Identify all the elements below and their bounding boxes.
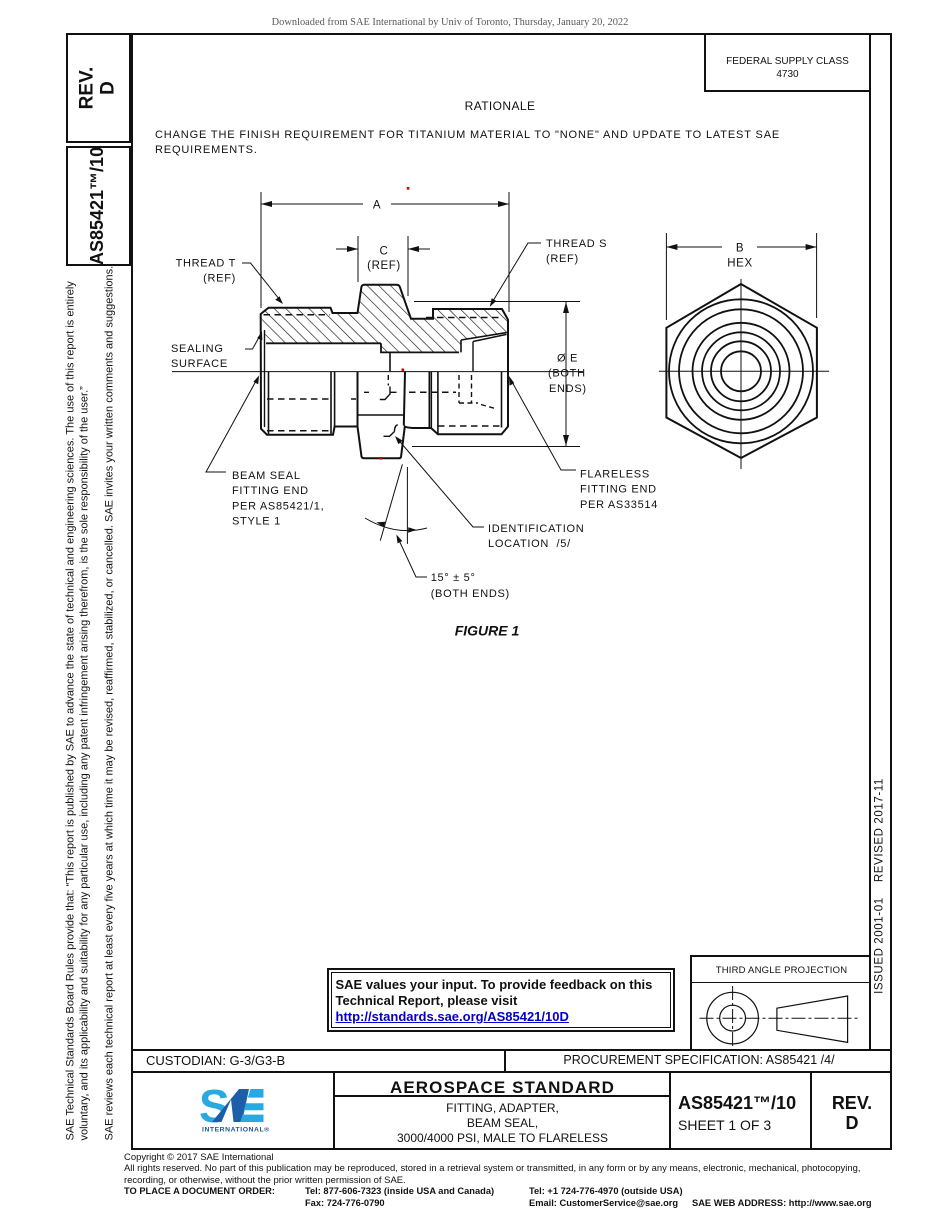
svg-text:HEX: HEX [727,258,752,270]
svg-text:INTERNATIONAL®: INTERNATIONAL® [202,1126,270,1134]
svg-text:FLARELESS: FLARELESS [580,469,650,481]
svg-text:(REF): (REF) [203,272,236,284]
svg-text:B: B [736,243,744,255]
svg-text:STYLE 1: STYLE 1 [232,516,281,528]
svg-text:Ø E: Ø E [557,353,578,365]
svg-text:FITTING END: FITTING END [580,484,657,496]
svg-text:PER AS33514: PER AS33514 [580,499,658,511]
svg-text:FIGURE 1: FIGURE 1 [455,623,520,639]
svg-text:THREAD T: THREAD T [176,258,236,270]
svg-text:(REF): (REF) [367,260,401,272]
svg-text:FITTING END: FITTING END [232,485,309,497]
svg-text:IDENTIFICATION: IDENTIFICATION [488,523,584,535]
svg-text:A: A [373,200,381,212]
svg-text:ENDS): ENDS) [549,383,587,395]
svg-text:15° ± 5°: 15° ± 5° [431,572,476,584]
svg-text:THREAD S: THREAD S [546,238,607,250]
svg-text:(REF): (REF) [546,253,579,265]
svg-text:SEALING: SEALING [171,343,224,355]
svg-text:SURFACE: SURFACE [171,358,228,370]
svg-text:C: C [380,246,389,258]
svg-text:BEAM SEAL: BEAM SEAL [232,470,301,482]
svg-text:LOCATION /5/: LOCATION /5/ [488,538,571,550]
svg-text:(BOTH: (BOTH [548,368,586,380]
svg-text:S: S [199,1080,230,1132]
svg-text:(BOTH ENDS): (BOTH ENDS) [431,588,510,600]
svg-text:PER AS85421/1,: PER AS85421/1, [232,500,324,512]
